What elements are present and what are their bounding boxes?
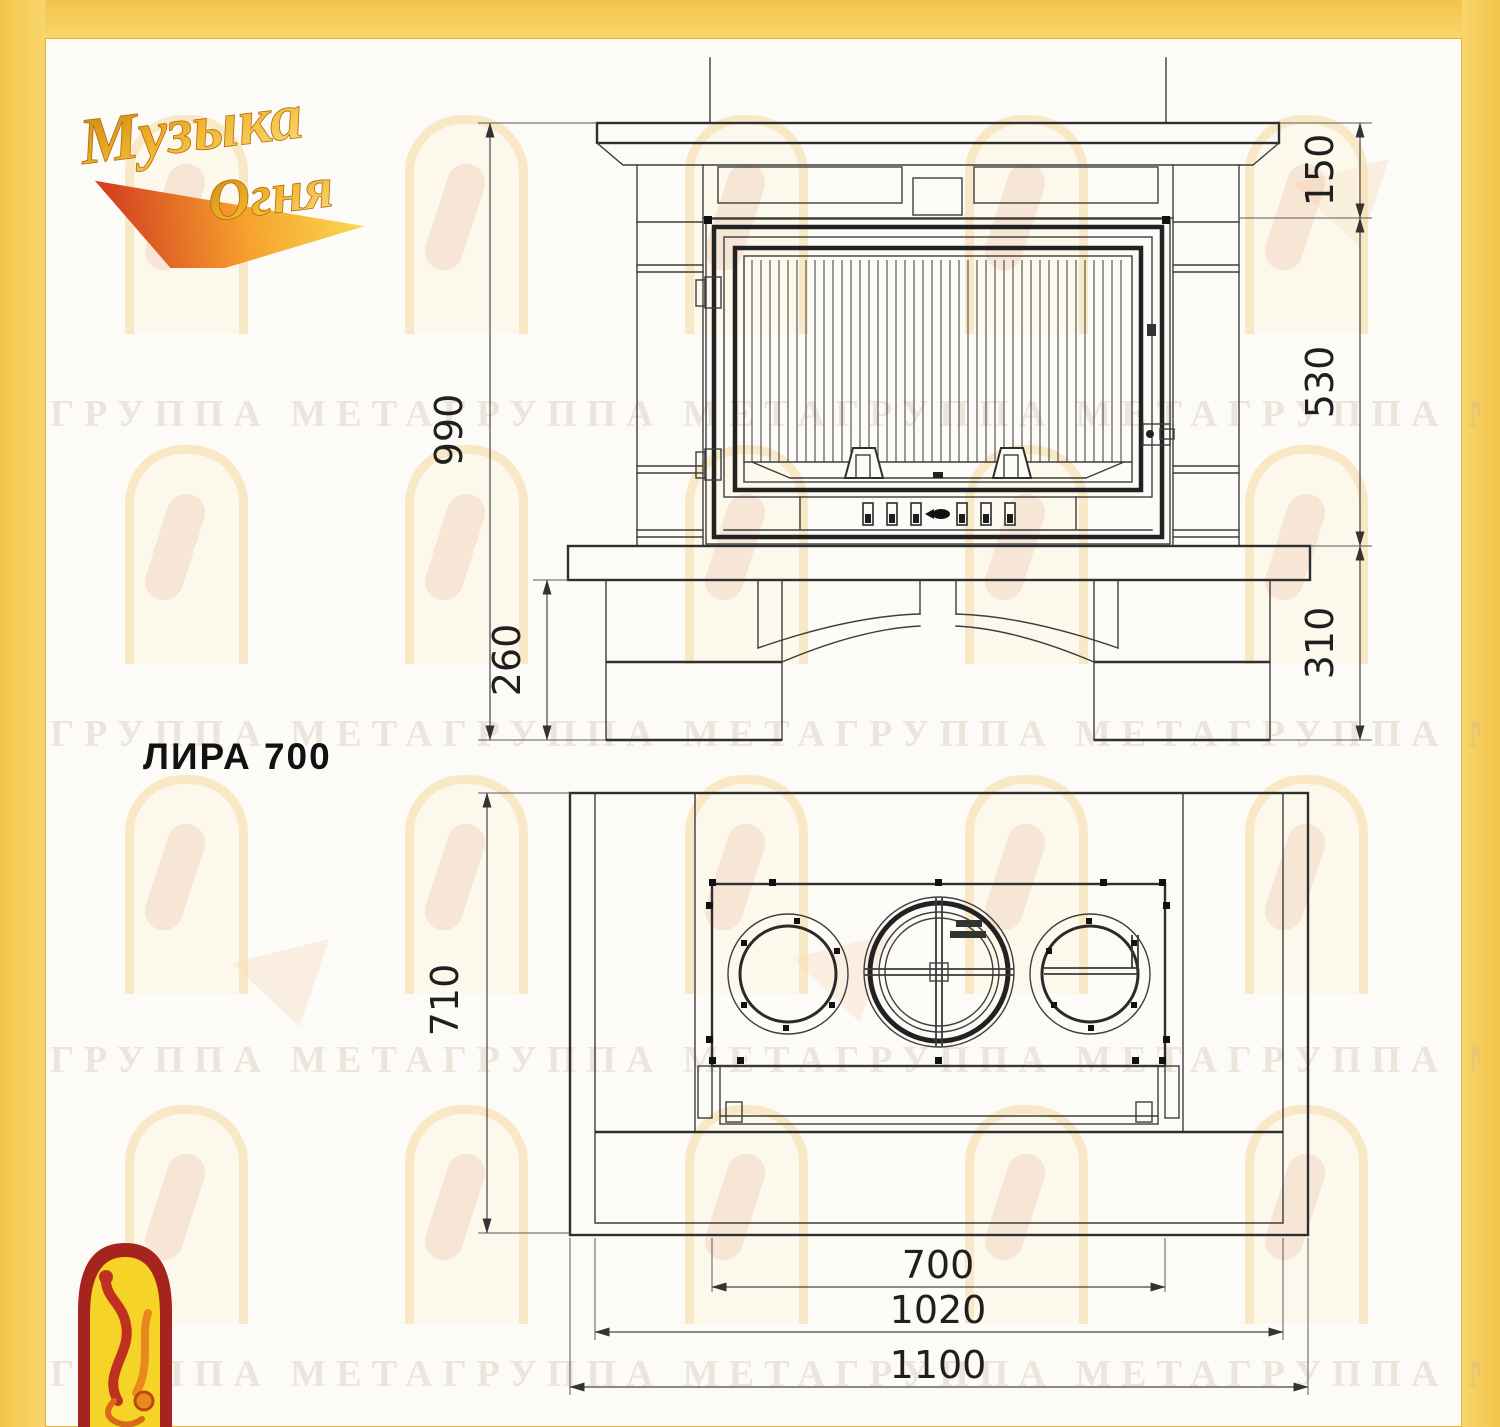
plan-outer — [570, 793, 1308, 1235]
plan-circle-right — [1030, 914, 1150, 1034]
frieze-panel-left — [718, 167, 902, 203]
frieze-panel-right — [974, 167, 1158, 203]
door-hinges — [696, 277, 721, 480]
mantel-bevel — [597, 143, 1279, 165]
dim-hearth-zone: 260 — [485, 624, 529, 697]
page: ГРУППА МЕТАГРУППА МЕТАГРУППА МЕТАГРУППА … — [0, 0, 1500, 1427]
dim-base-zone: 310 — [1298, 607, 1342, 680]
logo-muzyka-ognya: Музыка Огня — [55, 48, 385, 268]
mantel-shelf — [597, 123, 1279, 143]
front-view — [568, 58, 1310, 740]
plan-bolts — [706, 879, 1170, 1064]
dim-mantel-zone: 150 — [1298, 134, 1342, 207]
model-label: ЛИРА 700 — [143, 736, 332, 778]
chimney-lines — [710, 58, 1166, 123]
dim-plinth-width: 1020 — [890, 1288, 987, 1332]
dim-firebox-width: 700 — [902, 1243, 975, 1287]
dim-depth: 710 — [423, 964, 467, 1037]
frieze-keystone — [913, 178, 962, 215]
base-arch — [758, 614, 1118, 662]
door-grill — [752, 260, 1121, 462]
dimensions: 990 260 150 530 310 710 700 1020 1100 — [423, 123, 1372, 1395]
logo-firebird — [70, 1233, 180, 1427]
dim-overall-width: 1100 — [890, 1343, 987, 1387]
vent-slots — [863, 503, 1015, 525]
plan-circle-left — [728, 914, 848, 1034]
andiron-right — [993, 448, 1031, 478]
hearth-shelf — [568, 546, 1310, 580]
plan-circle-center — [864, 897, 1014, 1047]
plan-view — [570, 793, 1308, 1235]
dim-firebox-zone: 530 — [1298, 346, 1342, 419]
base-legs — [606, 580, 1270, 740]
dim-overall-height: 990 — [427, 394, 471, 467]
firebox-door — [696, 216, 1174, 544]
